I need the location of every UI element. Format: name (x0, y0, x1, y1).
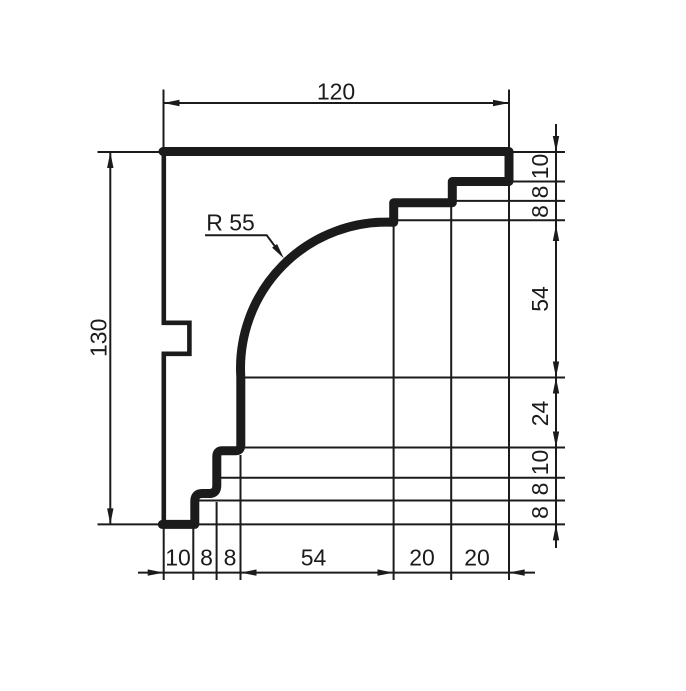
svg-text:10: 10 (165, 545, 191, 571)
svg-text:10: 10 (527, 154, 553, 180)
svg-text:20: 20 (464, 545, 490, 571)
svg-text:54: 54 (301, 545, 327, 571)
svg-text:8: 8 (527, 205, 553, 218)
svg-text:24: 24 (527, 401, 553, 427)
svg-text:8: 8 (527, 506, 553, 519)
svg-text:120: 120 (317, 79, 355, 105)
svg-text:130: 130 (86, 319, 112, 357)
svg-text:10: 10 (527, 450, 553, 476)
svg-text:54: 54 (527, 286, 553, 312)
svg-text:8: 8 (224, 545, 237, 571)
svg-text:R 55: R 55 (206, 210, 255, 236)
svg-text:8: 8 (200, 545, 213, 571)
svg-text:8: 8 (527, 186, 553, 199)
svg-text:8: 8 (527, 483, 553, 496)
svg-text:20: 20 (409, 545, 435, 571)
